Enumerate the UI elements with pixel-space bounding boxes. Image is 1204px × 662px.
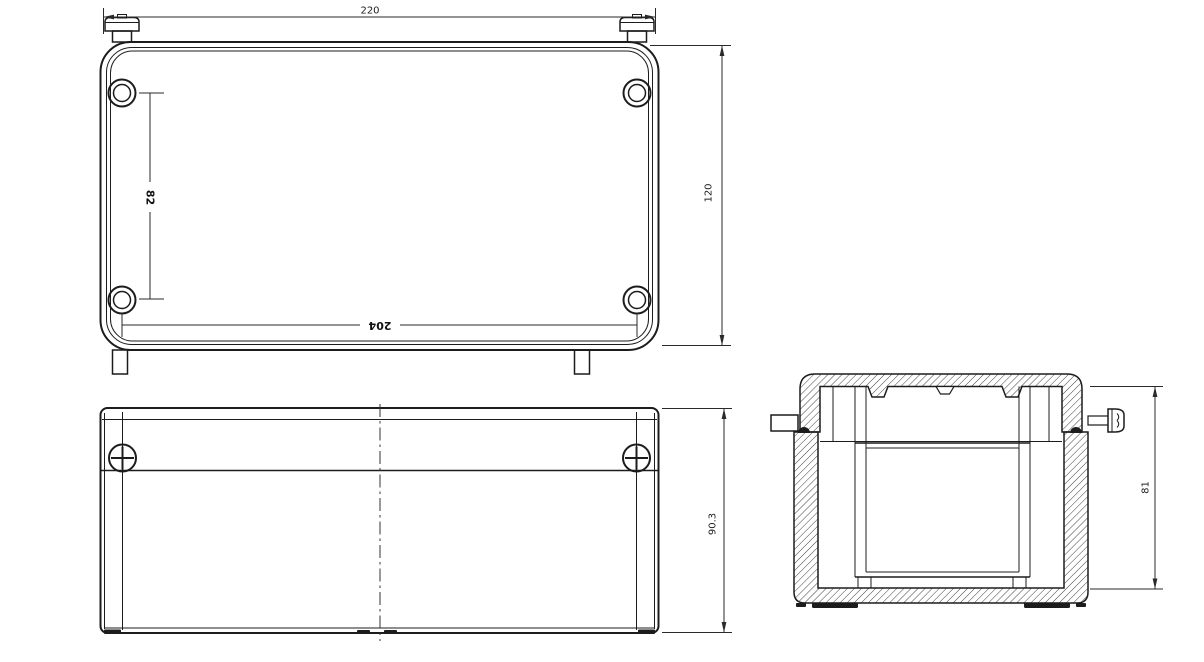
top-view-inner-outline	[111, 51, 649, 341]
tab-right	[575, 350, 590, 374]
mounting-hole-top-right	[624, 80, 651, 107]
side-screw	[1088, 409, 1124, 432]
top-view-outer-outline	[101, 42, 659, 350]
lid-screw-left	[105, 15, 139, 43]
dimension-height-90-3: 90.3	[662, 409, 732, 633]
foot-center-left	[357, 630, 370, 634]
section-foot-right	[1024, 603, 1070, 608]
section-view: 81	[771, 374, 1163, 608]
dimension-width-220: 220	[104, 6, 656, 35]
dim-label-220: 220	[360, 6, 379, 17]
dimension-depth-120: 120	[650, 46, 731, 346]
drawing-sheet: 220 120 82 204	[0, 0, 1204, 662]
lid-center-notch	[936, 387, 954, 395]
front-screw-left	[109, 445, 136, 472]
section-lid-cross-section	[800, 374, 1082, 432]
foot-center-right	[384, 630, 397, 634]
foot-left	[104, 630, 121, 635]
foot-right	[638, 630, 655, 635]
dimension-hole-pitch-204: 204	[122, 313, 637, 337]
dimension-hole-pitch-82: 82	[139, 93, 164, 299]
mounting-hole-bottom-right	[624, 287, 651, 314]
inner-container	[855, 387, 1030, 589]
mounting-hole-top-left	[109, 80, 136, 107]
top-view-mid-outline	[107, 48, 653, 345]
side-tab	[771, 415, 798, 431]
top-view: 220 120 82 204	[101, 6, 732, 375]
dim-label-120: 120	[704, 183, 715, 202]
technical-drawing-canvas: 220 120 82 204	[0, 0, 1204, 662]
mounting-hole-bottom-left	[109, 287, 136, 314]
front-view: 90.3	[101, 404, 733, 641]
front-screw-right	[623, 445, 650, 472]
section-foot-left	[812, 603, 858, 608]
lid-screw-right	[620, 15, 654, 43]
dim-label-204: 204	[368, 319, 391, 332]
dim-label-81: 81	[1141, 481, 1152, 494]
tab-left	[113, 350, 128, 374]
dim-label-90-3: 90.3	[708, 513, 719, 535]
dim-label-82: 82	[144, 190, 157, 205]
